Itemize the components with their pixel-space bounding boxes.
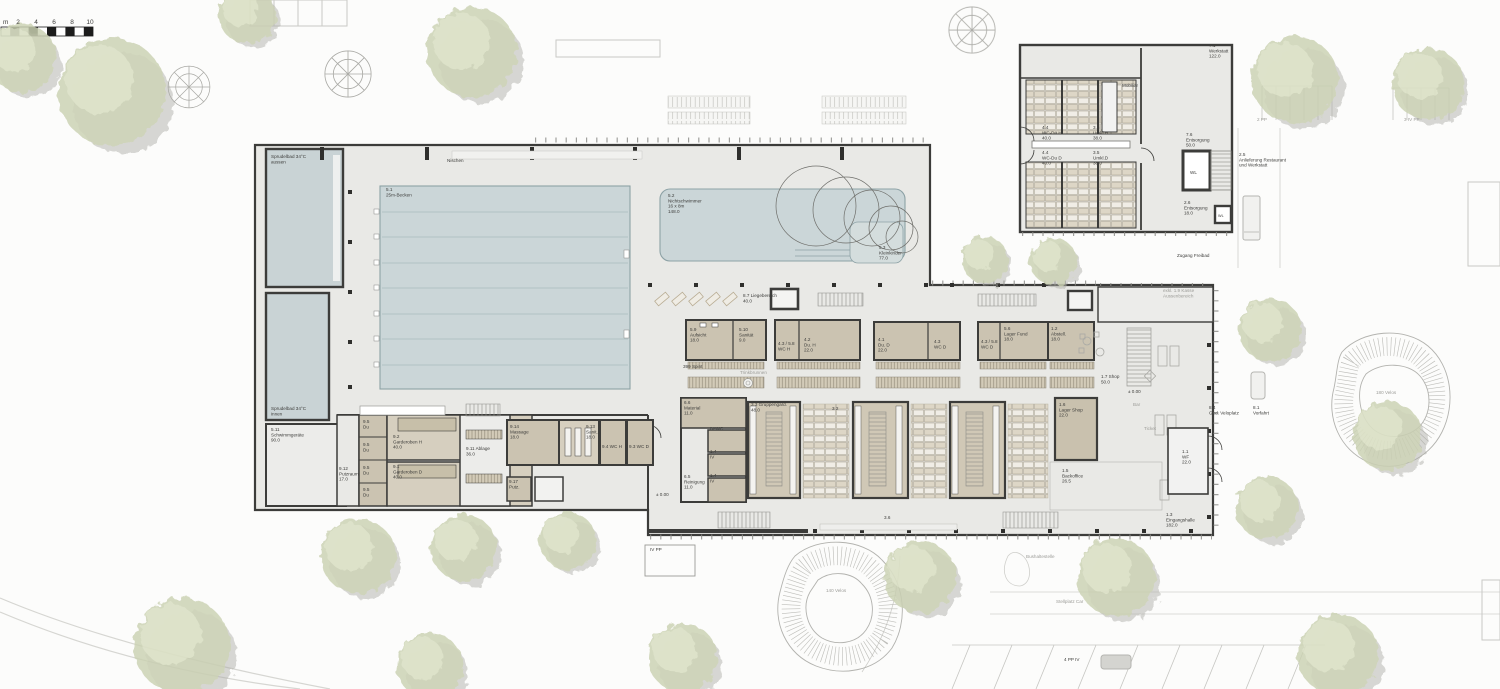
- pool-25m: [374, 186, 630, 389]
- car-symbol: [1251, 372, 1265, 399]
- label-scale-6: 6: [52, 19, 56, 26]
- label-wc-d-9: 9.3 WC D: [629, 444, 650, 449]
- label-du-4: 9.5Du: [363, 487, 370, 497]
- label-ticket: Ticket: [1144, 426, 1157, 431]
- label-pp-3iv: 3 IV PP: [1404, 117, 1420, 122]
- south-bench: [820, 524, 957, 530]
- village-rooms: [686, 320, 1094, 360]
- label-level-pool: ± 0.00: [656, 492, 669, 497]
- label-pp-2: 2 PP: [1257, 117, 1267, 122]
- group-room: [853, 402, 908, 498]
- label-stellplatz-car: Stellplatz Car: [1056, 599, 1084, 604]
- label-wl-2: WL: [1218, 214, 1224, 218]
- south-stair: [718, 512, 770, 528]
- floor-plan-drawing: m246810Sprudelbad 34°CaussenNischen5.125…: [0, 0, 1500, 689]
- floor-plan-page: m246810Sprudelbad 34°CaussenNischen5.125…: [0, 0, 1500, 689]
- label-scale-10: 10: [86, 19, 94, 26]
- locker-bank: [1026, 162, 1136, 228]
- village-ramp: [818, 293, 863, 306]
- group-changing-block: [681, 398, 1048, 502]
- label-scale-4: 4: [34, 19, 38, 26]
- label-wc-h-9: 9.4 WC H: [602, 444, 622, 449]
- drinking-fountain: [744, 379, 753, 388]
- truck-symbol: [1243, 196, 1260, 240]
- label-velos-180: 180 Velos: [1376, 390, 1397, 395]
- label-scale-2: 2: [16, 19, 20, 26]
- mobiliar-closet: [1102, 82, 1117, 132]
- whirlpool-outdoor: [266, 149, 343, 287]
- label-nischen: Nischen: [447, 158, 464, 163]
- group-room: [748, 402, 800, 498]
- label-scale-unit: m: [3, 19, 8, 26]
- outline-tree: [949, 7, 995, 53]
- group-room: [950, 402, 1005, 498]
- label-wl-1: WL: [1190, 170, 1197, 175]
- south-stair: [1003, 512, 1058, 528]
- label-putz-klein: 9.17Putz.: [509, 479, 519, 489]
- label-bar: Bar: [1133, 402, 1141, 407]
- whirlpool-indoor: [266, 293, 329, 420]
- label-spinde: 399 Spint: [683, 364, 703, 369]
- village-kiosk: [1068, 291, 1092, 310]
- label-facade-36: 3.6: [884, 515, 891, 520]
- label-scale-8: 8: [70, 19, 74, 26]
- corridor-bench: [1032, 141, 1130, 148]
- label-du-2: 9.5Du: [363, 442, 370, 452]
- label-corridor-32: 3.2: [832, 406, 839, 411]
- village-kiosk: [771, 289, 798, 309]
- label-du-1: 9.5Du: [363, 419, 370, 429]
- label-zugang-freibad: Zugang Freibad: [1177, 253, 1210, 258]
- niche-bench: [452, 151, 642, 159]
- service-stair: [1211, 151, 1231, 190]
- label-mobiliar: Mobiliar: [1122, 83, 1139, 88]
- label-du-3: 9.5Du: [363, 465, 370, 475]
- label-pp-4iv: 4 PP IV: [1064, 657, 1080, 662]
- kasse-room: [1098, 287, 1213, 322]
- label-kasse: exkl. 1.9 KasseAussenbereich: [1163, 288, 1195, 298]
- label-iv-pp: IV PP: [650, 547, 662, 552]
- whirlpool-bench: [333, 155, 340, 281]
- shop-stair: [1127, 328, 1151, 386]
- label-bushaltestelle: Bushaltestelle: [1026, 554, 1055, 559]
- village-ramp: [978, 294, 1036, 306]
- label-level-entry: ± 0.00: [1128, 389, 1141, 394]
- label-iv-wc: IV-WC: [710, 426, 724, 431]
- label-velos-140: 140 Velos: [826, 588, 847, 593]
- car-symbol: [1101, 655, 1131, 669]
- outline-tree: [168, 66, 210, 108]
- label-trinkbrunnen: Trinkbrunnen: [740, 370, 767, 375]
- outline-tree: [325, 51, 371, 97]
